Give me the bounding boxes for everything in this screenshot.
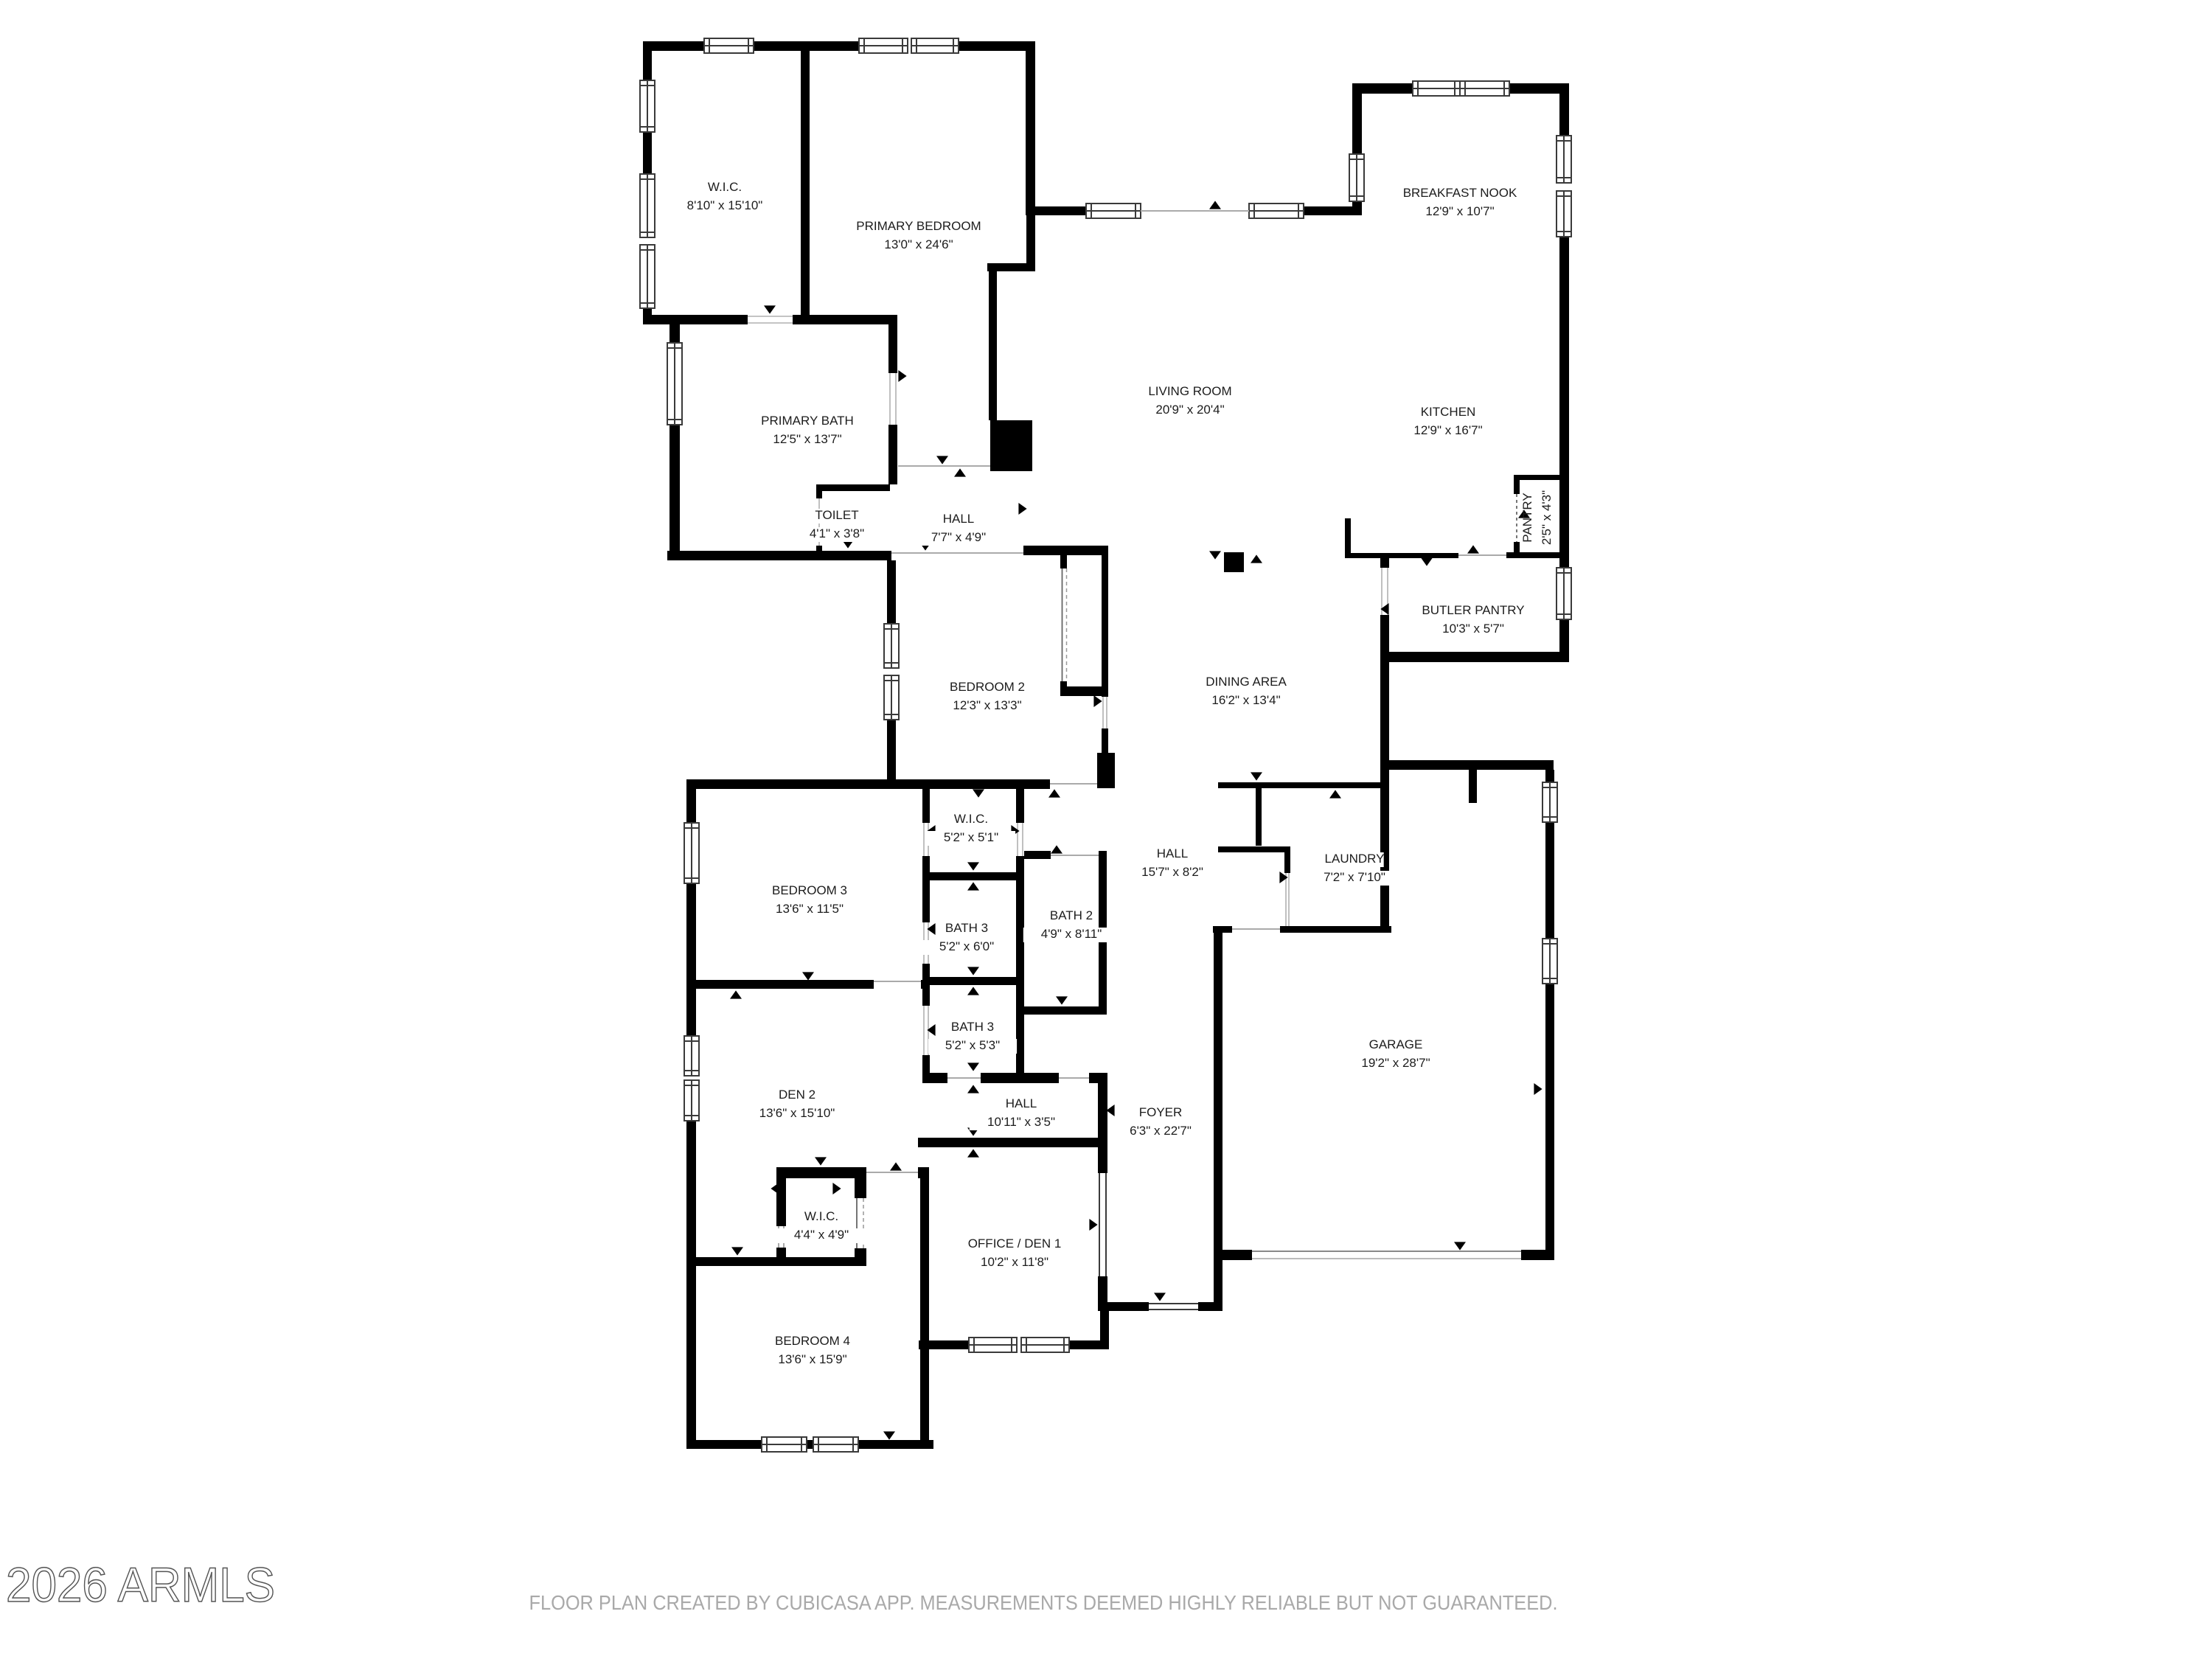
svg-text:HALL: HALL [943, 512, 975, 526]
svg-text:LIVING ROOM: LIVING ROOM [1148, 384, 1231, 398]
svg-text:7'2" x 7'10": 7'2" x 7'10" [1324, 870, 1385, 884]
svg-text:13'6" x 11'5": 13'6" x 11'5" [776, 902, 844, 916]
svg-text:PRIMARY BATH: PRIMARY BATH [761, 414, 854, 428]
svg-text:8'10" x 15'10": 8'10" x 15'10" [687, 198, 763, 212]
svg-text:PANTRY: PANTRY [1520, 493, 1534, 542]
svg-text:BEDROOM 3: BEDROOM 3 [772, 883, 847, 897]
svg-text:HALL: HALL [1157, 846, 1189, 860]
svg-text:PRIMARY BEDROOM: PRIMARY BEDROOM [856, 219, 981, 233]
svg-text:10'2" x 11'8": 10'2" x 11'8" [981, 1255, 1048, 1269]
svg-text:W.I.C.: W.I.C. [708, 180, 742, 194]
svg-text:5'2" x 6'0": 5'2" x 6'0" [939, 939, 994, 953]
svg-text:2026 ARMLS: 2026 ARMLS [6, 1557, 275, 1612]
svg-text:BUTLER PANTRY: BUTLER PANTRY [1422, 603, 1524, 617]
svg-text:FOYER: FOYER [1139, 1105, 1183, 1119]
svg-text:5'2" x 5'3": 5'2" x 5'3" [945, 1038, 1000, 1052]
svg-text:FLOOR PLAN CREATED BY CUBICASA: FLOOR PLAN CREATED BY CUBICASA APP. MEAS… [529, 1591, 1558, 1614]
svg-text:DEN 2: DEN 2 [779, 1088, 815, 1102]
svg-text:4'1" x 3'8": 4'1" x 3'8" [810, 526, 864, 540]
svg-text:2'5" x 4'3": 2'5" x 4'3" [1540, 490, 1554, 545]
svg-text:BEDROOM 4: BEDROOM 4 [775, 1334, 850, 1348]
svg-text:13'0" x 24'6": 13'0" x 24'6" [884, 237, 953, 251]
svg-text:BATH 3: BATH 3 [951, 1020, 994, 1034]
svg-text:6'3" x 22'7": 6'3" x 22'7" [1130, 1124, 1192, 1138]
svg-text:12'5" x 13'7": 12'5" x 13'7" [773, 432, 841, 446]
svg-text:OFFICE / DEN 1: OFFICE / DEN 1 [968, 1237, 1062, 1251]
svg-text:7'7" x 4'9": 7'7" x 4'9" [931, 530, 986, 544]
svg-text:GARAGE: GARAGE [1369, 1037, 1423, 1051]
svg-text:20'9" x 20'4": 20'9" x 20'4" [1155, 403, 1224, 417]
svg-text:12'9" x 10'7": 12'9" x 10'7" [1425, 204, 1494, 218]
svg-text:15'7" x 8'2": 15'7" x 8'2" [1141, 865, 1203, 879]
svg-text:BREAKFAST NOOK: BREAKFAST NOOK [1403, 186, 1517, 200]
svg-text:BATH 2: BATH 2 [1050, 908, 1093, 922]
svg-text:HALL: HALL [1006, 1096, 1037, 1110]
svg-text:LAUNDRY: LAUNDRY [1325, 852, 1385, 866]
svg-text:12'3" x 13'3": 12'3" x 13'3" [953, 698, 1021, 712]
svg-text:DINING AREA: DINING AREA [1206, 675, 1287, 689]
svg-text:19'2" x 28'7": 19'2" x 28'7" [1361, 1056, 1430, 1070]
svg-text:TOILET: TOILET [815, 508, 858, 522]
svg-text:BEDROOM 2: BEDROOM 2 [950, 680, 1025, 694]
svg-text:10'3" x 5'7": 10'3" x 5'7" [1442, 622, 1504, 636]
svg-text:10'11" x 3'5": 10'11" x 3'5" [987, 1115, 1055, 1129]
svg-text:12'9" x 16'7": 12'9" x 16'7" [1413, 423, 1482, 437]
svg-text:W.I.C.: W.I.C. [954, 812, 988, 826]
svg-text:KITCHEN: KITCHEN [1421, 405, 1476, 419]
svg-text:W.I.C.: W.I.C. [804, 1209, 838, 1223]
svg-text:13'6" x 15'10": 13'6" x 15'10" [759, 1106, 835, 1120]
svg-text:16'2" x 13'4": 16'2" x 13'4" [1211, 693, 1280, 707]
svg-text:4'4" x 4'9": 4'4" x 4'9" [794, 1228, 849, 1242]
svg-text:13'6" x 15'9": 13'6" x 15'9" [778, 1352, 846, 1366]
svg-text:4'9" x 8'11": 4'9" x 8'11" [1041, 927, 1102, 941]
svg-text:5'2" x 5'1": 5'2" x 5'1" [944, 830, 998, 844]
svg-text:BATH 3: BATH 3 [945, 921, 988, 935]
